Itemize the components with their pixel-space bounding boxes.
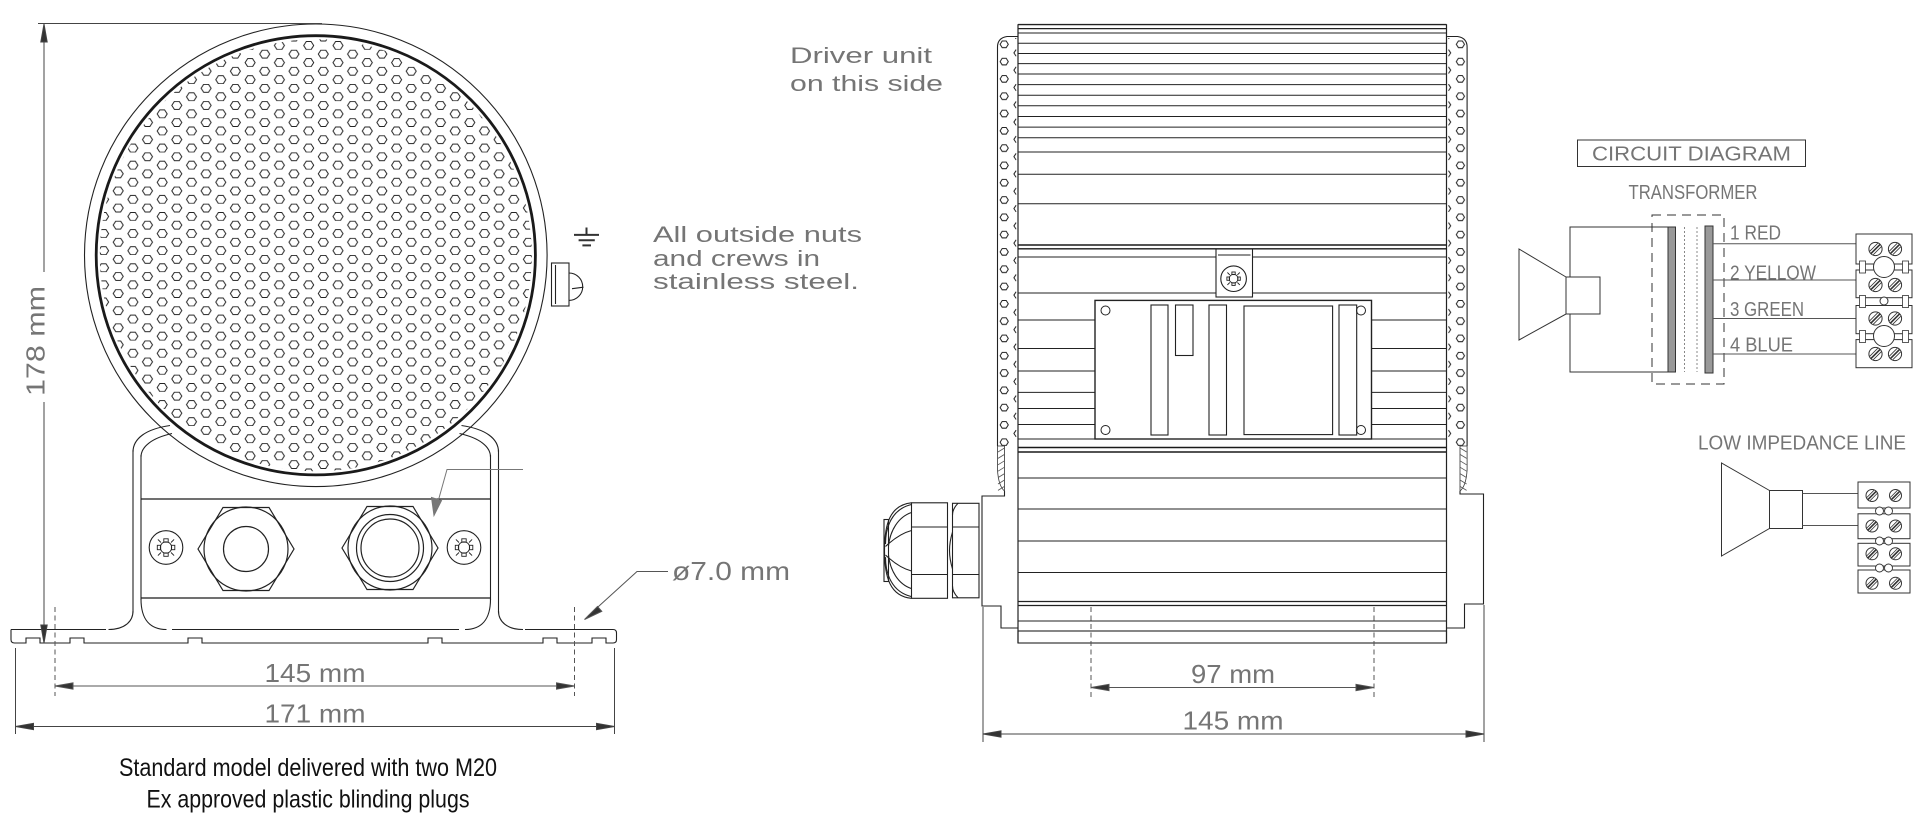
svg-text:on this side: on this side <box>790 71 943 96</box>
svg-text:4 BLUE: 4 BLUE <box>1730 334 1793 357</box>
svg-text:CIRCUIT DIAGRAM: CIRCUIT DIAGRAM <box>1592 143 1791 166</box>
svg-text:145 mm: 145 mm <box>1183 706 1284 736</box>
svg-text:Ex approved plastic blinding p: Ex approved plastic blinding plugs <box>147 786 470 814</box>
svg-text:TRANSFORMER: TRANSFORMER <box>1629 181 1758 204</box>
svg-text:LOW IMPEDANCE LINE: LOW IMPEDANCE LINE <box>1698 432 1906 455</box>
svg-text:178 mm: 178 mm <box>21 286 51 396</box>
svg-text:171 mm: 171 mm <box>265 699 366 729</box>
svg-text:1 RED: 1 RED <box>1730 222 1781 245</box>
svg-text:All outside nuts: All outside nuts <box>653 222 862 247</box>
svg-text:and crews in: and crews in <box>653 246 820 271</box>
svg-text:Driver unit: Driver unit <box>790 43 932 68</box>
svg-text:97 mm: 97 mm <box>1191 659 1275 689</box>
svg-text:Standard model delivered with: Standard model delivered with two M20 <box>119 754 497 782</box>
svg-text:ø7.0 mm: ø7.0 mm <box>672 556 790 586</box>
svg-text:stainless steel.: stainless steel. <box>653 269 859 294</box>
svg-text:145 mm: 145 mm <box>265 658 366 688</box>
svg-text:2 YELLOW: 2 YELLOW <box>1730 262 1817 285</box>
svg-text:3 GREEN: 3 GREEN <box>1730 298 1804 321</box>
